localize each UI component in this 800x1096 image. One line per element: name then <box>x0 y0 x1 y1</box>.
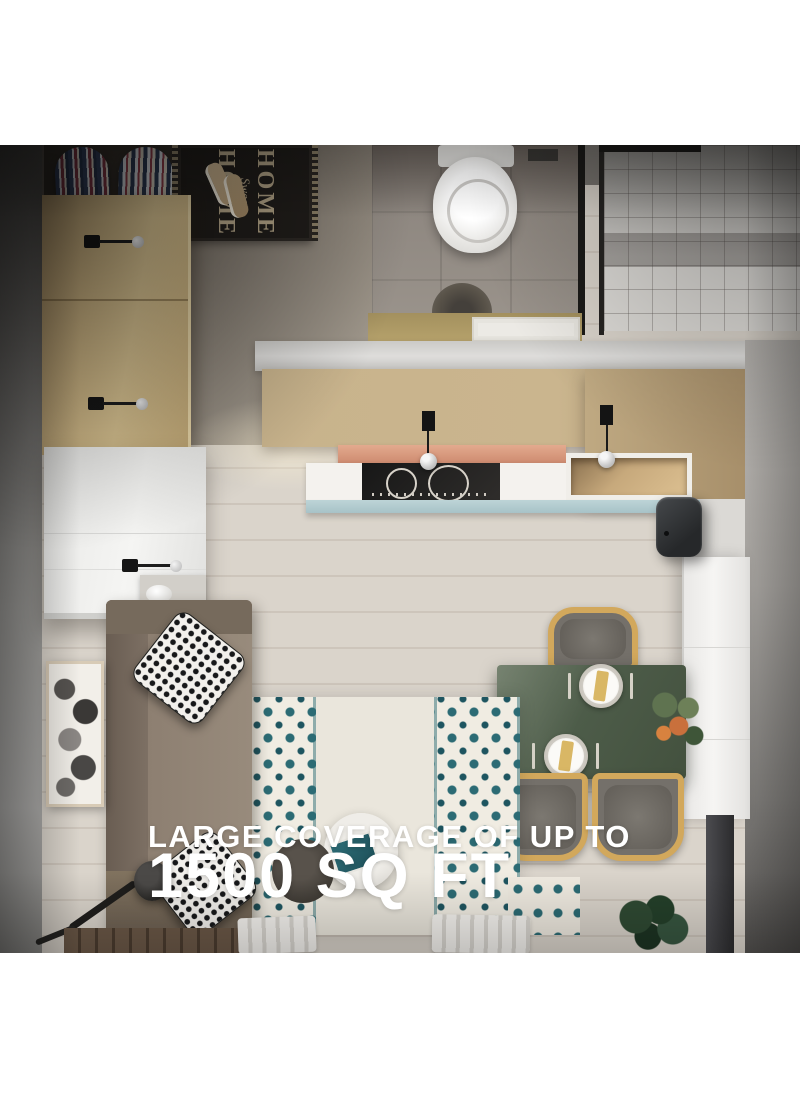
dinner-plate <box>544 734 588 778</box>
kitchen-salmon-shelf <box>338 445 566 463</box>
chair-seat <box>560 619 626 659</box>
doormat-fringe <box>312 145 318 241</box>
device-button <box>664 531 669 536</box>
pendant-light-anchor <box>422 411 435 431</box>
wall-spotlight <box>122 559 184 573</box>
pleated-radiator <box>432 914 531 953</box>
pendant-light-anchor <box>600 405 613 425</box>
wall-niche <box>528 149 558 161</box>
potted-plant <box>612 893 692 953</box>
wardrobe-seam <box>42 299 188 301</box>
wood-wardrobe <box>42 195 191 455</box>
kitchen-backsplash <box>306 500 700 513</box>
cutlery <box>596 743 599 769</box>
wall-art-frame <box>46 661 104 807</box>
coverage-caption-line2: 1500 SQ FT <box>148 845 511 908</box>
wifi-extender-device <box>656 497 702 557</box>
left-wall <box>0 145 42 953</box>
toilet <box>433 157 517 253</box>
spotlight-arm <box>137 564 171 567</box>
shower-glass-frame <box>578 145 585 335</box>
cutlery <box>630 673 633 699</box>
cabinet-seam <box>684 647 750 648</box>
doormat: HOME Sweet HOME <box>178 145 312 241</box>
spotlight-head <box>84 235 100 248</box>
niche-wood-interior <box>571 458 687 495</box>
tall-white-cabinet <box>682 557 750 819</box>
flower-bouquet <box>648 690 704 750</box>
spotlight-head <box>88 397 104 410</box>
tv-panel <box>706 815 734 953</box>
cutlery <box>568 673 571 699</box>
bath-mat <box>472 317 580 342</box>
cooktop-burner <box>428 465 469 502</box>
spotlight-arm <box>99 240 133 243</box>
pleated-radiator <box>237 916 316 953</box>
wood-slat-floor <box>64 928 254 953</box>
spotlight-bulb <box>170 560 182 572</box>
spotlight-head <box>122 559 138 572</box>
shower-shelf-shadow <box>604 233 800 267</box>
spotlight-bulb <box>136 398 148 410</box>
spotlight-bulb <box>132 236 144 248</box>
shower-glass-frame <box>599 145 604 335</box>
toilet-seat <box>447 179 509 243</box>
cooktop-controls <box>372 493 488 496</box>
spotlight-arm <box>103 402 137 405</box>
pendant-light-cord <box>606 425 608 453</box>
dining-chair <box>548 607 638 671</box>
cutlery <box>532 743 535 769</box>
kitchen-recessed-niche <box>566 453 692 500</box>
cabinet-seam <box>44 533 206 534</box>
pendant-light-bulb <box>598 451 615 468</box>
dinner-plate <box>579 664 623 708</box>
wall-spotlight <box>88 397 150 411</box>
doormat-word: HOME <box>252 145 277 241</box>
apartment-topdown-photo: HOME Sweet HOME <box>0 145 800 953</box>
napkin <box>593 670 609 701</box>
wall-spotlight <box>84 235 146 249</box>
pendant-light-bulb <box>420 453 437 470</box>
pendant-light-cord <box>427 431 429 455</box>
partition-wall-top <box>255 341 800 371</box>
right-wall <box>745 340 800 953</box>
napkin <box>558 740 574 771</box>
product-marketing-image: HOME Sweet HOME <box>0 0 800 1096</box>
shower-glass-frame <box>599 145 701 152</box>
